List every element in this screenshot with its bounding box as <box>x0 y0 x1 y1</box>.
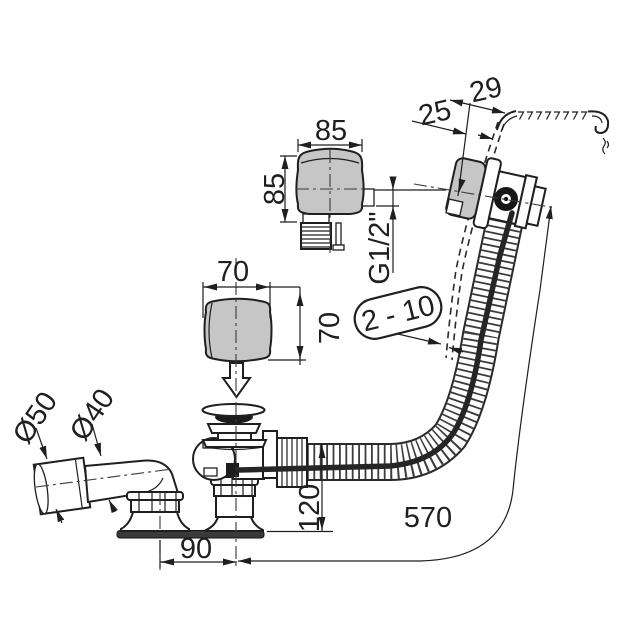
overflow-knob-large <box>297 149 375 250</box>
knob-small-height-label: 70 <box>314 312 346 344</box>
drain-overflow-drawing: 570 29 25 2 - 10 <box>0 0 630 630</box>
thread-size-label: G1/2" <box>364 211 396 284</box>
knob-large-height-label: 85 <box>259 173 291 205</box>
knob-large-width-label: 85 <box>315 115 347 147</box>
left-trap-nut <box>121 492 189 531</box>
drain-trap-body <box>206 477 263 531</box>
dim-knob-large-height: 85 <box>259 156 297 222</box>
sleeve-diameter-label: Ø50 <box>7 386 64 449</box>
outlet-offset-label: 90 <box>180 533 212 565</box>
hose-connector <box>263 431 307 487</box>
hose-length-label: 570 <box>404 502 452 534</box>
rim-overhang-label: 25 <box>416 94 455 132</box>
tub-rim-profile <box>497 111 609 154</box>
drain-height-label: 120 <box>294 484 326 532</box>
rim-width-label: 29 <box>467 71 506 109</box>
dim-knob-small-height: 70 <box>268 287 346 365</box>
knob-small-width-label: 70 <box>217 256 249 288</box>
knob-pin <box>336 223 341 245</box>
pipe-diameter-label: Ø40 <box>64 383 121 446</box>
dim-knob-large-width: 85 <box>298 115 362 152</box>
popup-plug <box>203 404 267 450</box>
technical-drawing-canvas: 570 29 25 2 - 10 <box>0 0 630 630</box>
overflow-knob-small <box>205 299 272 362</box>
wall-thickness-callout: 2 - 10 <box>350 283 463 352</box>
